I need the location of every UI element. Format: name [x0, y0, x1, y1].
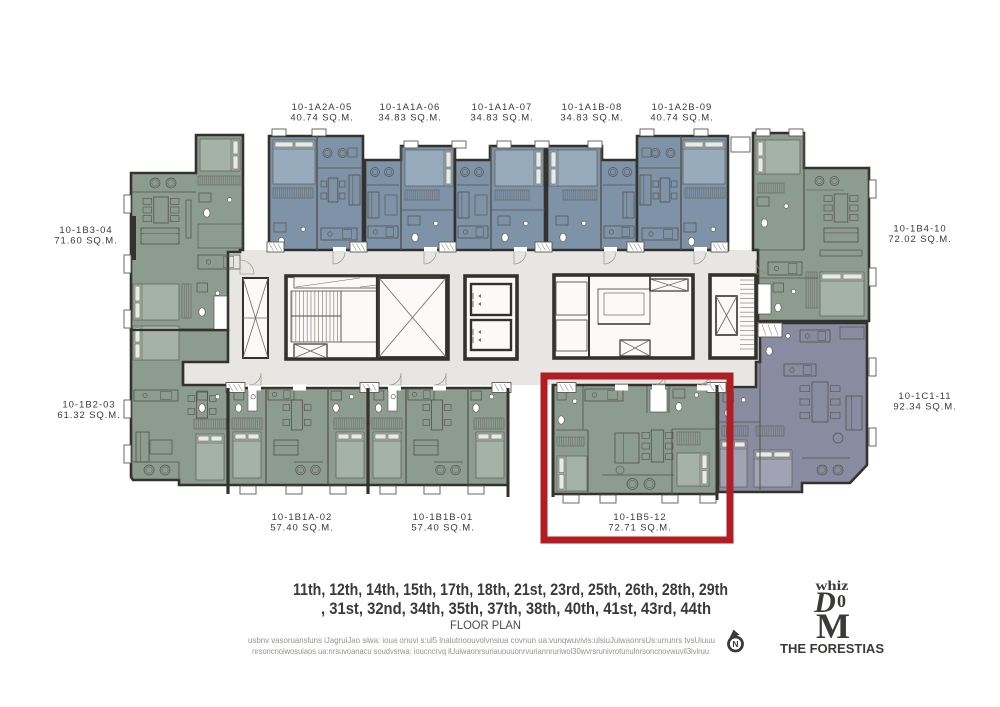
svg-text:34.83 SQ.M.: 34.83 SQ.M.: [470, 112, 533, 123]
svg-text:57.40 SQ.M.: 57.40 SQ.M.: [411, 522, 474, 533]
svg-text:72.71 SQ.M.: 72.71 SQ.M.: [608, 522, 671, 533]
svg-text:40.74 SQ.M.: 40.74 SQ.M.: [650, 112, 713, 123]
svg-text:nrsoncnoiwosuiaos ua:nrsuvoana: nrsoncnoiwosuiaos ua:nrsuvoanacu soudvsr…: [252, 647, 709, 656]
svg-text:40.74 SQ.M.: 40.74 SQ.M.: [290, 112, 353, 123]
svg-text:61.32 SQ.M.: 61.32 SQ.M.: [57, 410, 120, 421]
svg-text:71.60 SQ.M.: 71.60 SQ.M.: [54, 235, 117, 246]
svg-text:92.34 SQ.M.: 92.34 SQ.M.: [893, 401, 956, 412]
svg-text:57.40 SQ.M.: 57.40 SQ.M.: [270, 522, 333, 533]
svg-text:11th, 12th, 14th, 15th, 17th,: 11th, 12th, 14th, 15th, 17th, 18th, 21st…: [293, 580, 728, 599]
svg-text:34.83 SQ.M.: 34.83 SQ.M.: [560, 112, 623, 123]
svg-text:M: M: [816, 606, 850, 646]
svg-text:N: N: [732, 639, 738, 649]
svg-text:72.02 SQ.M.: 72.02 SQ.M.: [888, 234, 951, 245]
svg-text:THE FORESTIAS: THE FORESTIAS: [780, 642, 884, 656]
svg-text:usbnv vasoruansluns iJagruiJao: usbnv vasoruansluns iJagruiJao siwa: iou…: [248, 636, 715, 645]
svg-text:34.83 SQ.M.: 34.83 SQ.M.: [378, 112, 441, 123]
svg-text:, 31st, 32nd, 34th, 35th, 37th: , 31st, 32nd, 34th, 35th, 37th, 38th, 40…: [321, 599, 711, 618]
svg-text:FLOOR PLAN: FLOOR PLAN: [450, 620, 521, 632]
